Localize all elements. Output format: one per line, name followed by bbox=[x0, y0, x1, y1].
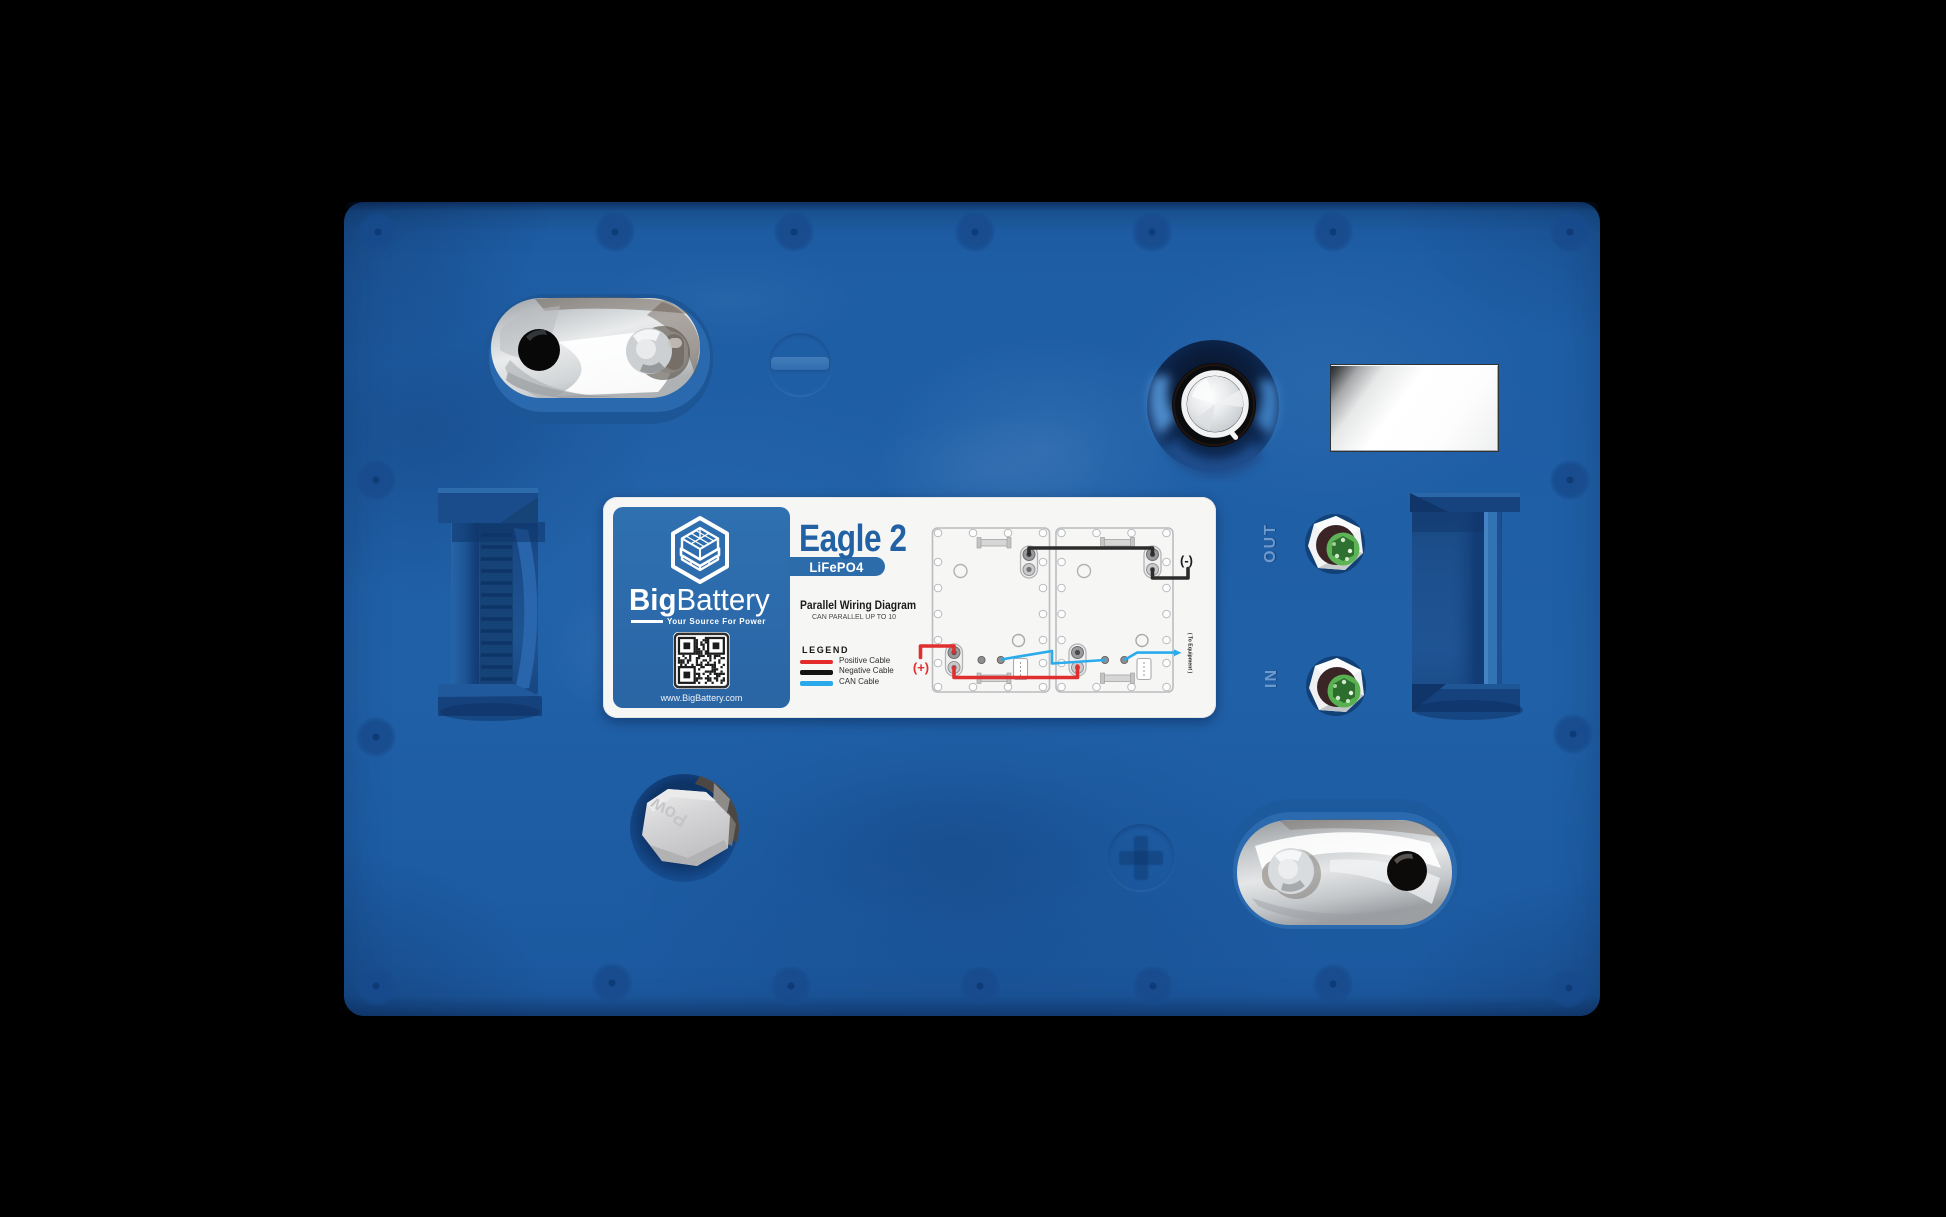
svg-text:(+): (+) bbox=[913, 660, 929, 675]
svg-text:( To Equipment ): ( To Equipment ) bbox=[1187, 633, 1193, 674]
svg-text:(-): (-) bbox=[1180, 553, 1193, 568]
